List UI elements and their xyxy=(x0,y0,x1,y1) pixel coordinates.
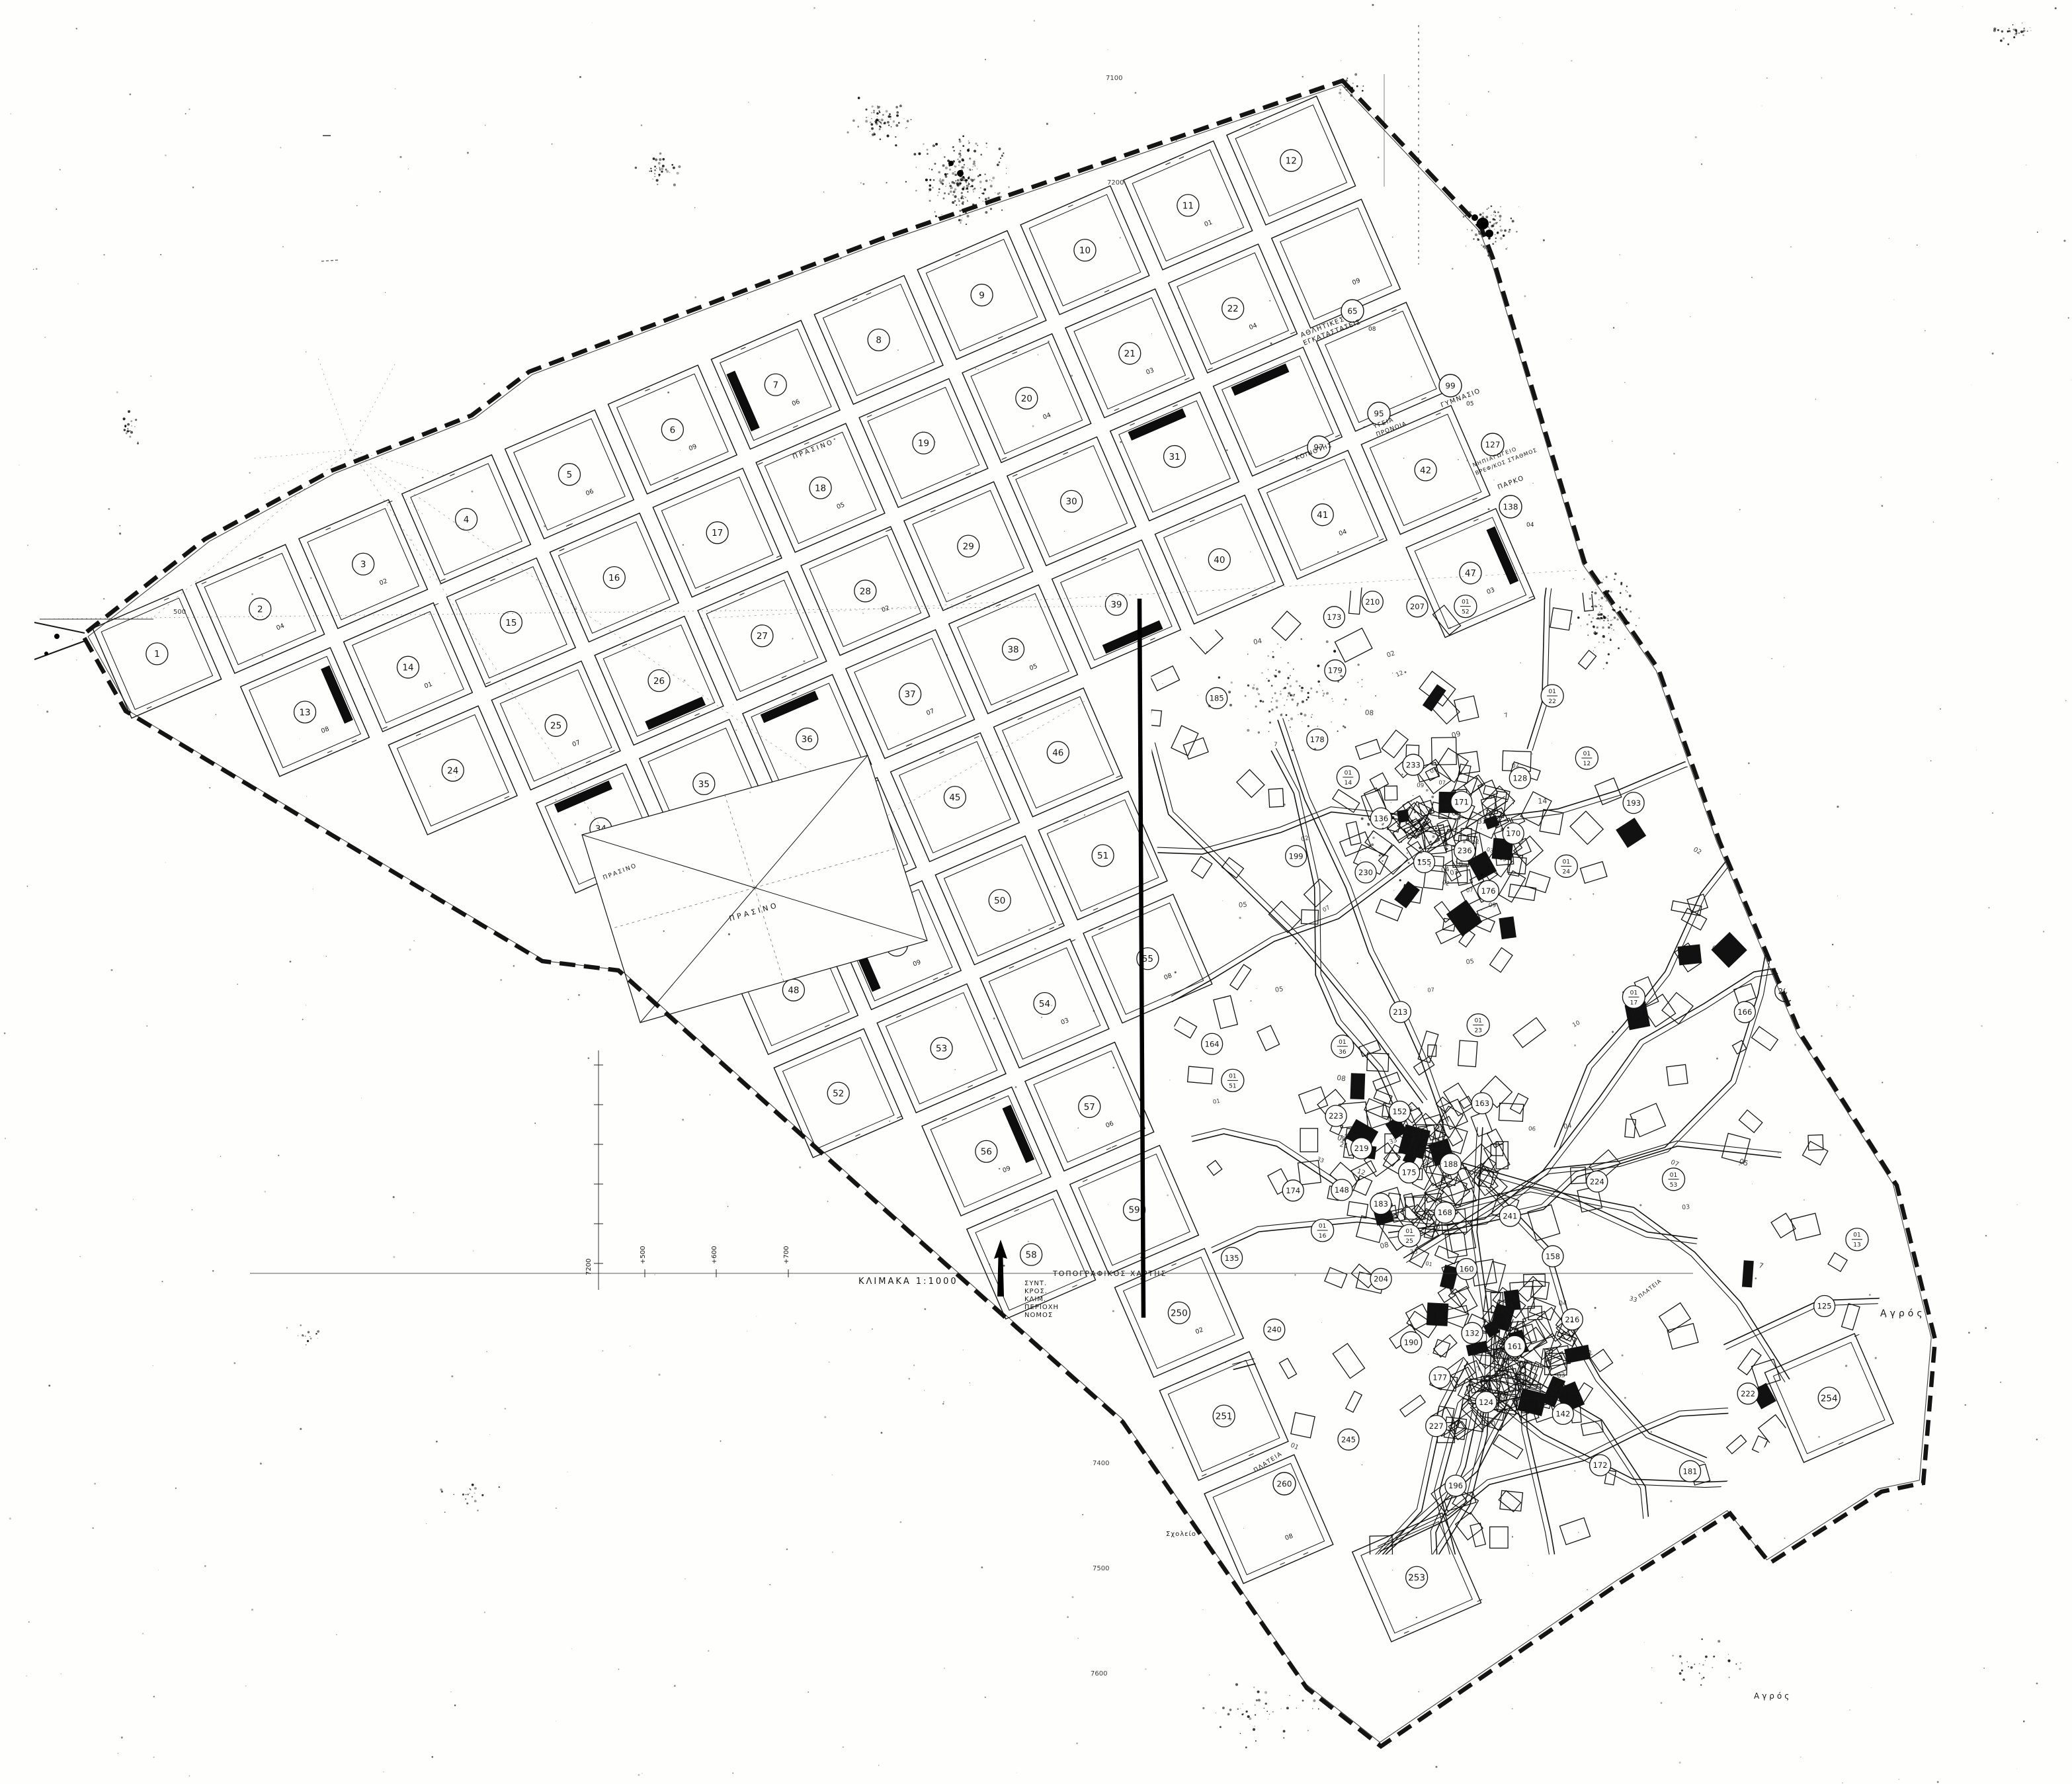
svg-text:01: 01 xyxy=(1319,1223,1326,1230)
block-number: 219 xyxy=(1354,1144,1369,1153)
block-number: 20 xyxy=(1021,394,1032,404)
block-number: 216 xyxy=(1565,1315,1579,1324)
svg-text:01: 01 xyxy=(1670,1172,1677,1179)
block-number: 183 xyxy=(1374,1199,1388,1209)
legend-line: ΚΛΙΜ. xyxy=(1024,1296,1046,1303)
svg-text:24: 24 xyxy=(1563,869,1571,875)
svg-text:13: 13 xyxy=(1853,1242,1860,1249)
block-number: 18 xyxy=(815,483,826,493)
block-number: 17 xyxy=(712,528,723,538)
map-annotation: Αγρός xyxy=(1880,1308,1926,1319)
grid-ref-label: 7500 xyxy=(1093,1565,1109,1572)
svg-text:07: 07 xyxy=(1427,986,1435,994)
block-number: 128 xyxy=(1513,773,1527,783)
block-number: 178 xyxy=(1310,735,1325,744)
block-number: 45 xyxy=(949,792,960,803)
block-number: 177 xyxy=(1432,1373,1447,1382)
block-number: 196 xyxy=(1448,1481,1463,1490)
block-number: 42 xyxy=(1420,465,1431,476)
block-number: 56 xyxy=(981,1147,992,1158)
block-number: 173 xyxy=(1327,613,1341,622)
block-number: 47 xyxy=(1465,568,1476,579)
block-number: 155 xyxy=(1417,857,1432,867)
block-number: 174 xyxy=(1286,1186,1300,1195)
svg-text:03: 03 xyxy=(1682,1203,1690,1211)
block-number: 166 xyxy=(1737,1007,1752,1017)
block-number: 29 xyxy=(963,542,974,552)
svg-text:01: 01 xyxy=(1425,1260,1433,1268)
grid-ref-label: 500 xyxy=(173,609,186,616)
block-number: 250 xyxy=(1171,1308,1188,1319)
block-number: 179 xyxy=(1328,666,1343,675)
block-number: 14 xyxy=(402,663,413,673)
block-number: 54 xyxy=(1039,999,1050,1009)
block-number: 136 xyxy=(1374,814,1388,823)
block-number: 185 xyxy=(1210,694,1224,703)
svg-text:07: 07 xyxy=(1466,887,1474,894)
block-number: 16 xyxy=(608,573,620,583)
svg-text:33: 33 xyxy=(1477,818,1487,826)
block-number: 95 xyxy=(1374,409,1384,418)
block-number: 30 xyxy=(1066,497,1077,507)
svg-text:01: 01 xyxy=(1405,1228,1413,1235)
grid-ref-label: 7200 xyxy=(1107,179,1124,187)
block-number: 65 xyxy=(1347,306,1357,316)
block-number: 1 xyxy=(154,649,160,659)
svg-text:36: 36 xyxy=(1339,1049,1347,1056)
block-number: 26 xyxy=(653,676,665,687)
block-number: 222 xyxy=(1741,1389,1755,1398)
svg-text:14: 14 xyxy=(1538,796,1547,805)
svg-text:16: 16 xyxy=(1319,1233,1327,1240)
svg-text:08: 08 xyxy=(1336,1074,1346,1083)
svg-text:22: 22 xyxy=(1548,699,1555,705)
svg-text:12: 12 xyxy=(1583,761,1591,767)
svg-text:03: 03 xyxy=(1557,1372,1566,1380)
block-number: 260 xyxy=(1277,1479,1292,1488)
map-annotation: ΤΟΠΟΓΡΑΦΙΚΟΣ ΧΑΡΤΗΣ xyxy=(1052,1269,1167,1278)
block-number: 57 xyxy=(1084,1102,1095,1113)
svg-text:01: 01 xyxy=(1462,599,1469,606)
grid-ref-label: 7100 xyxy=(1106,75,1122,82)
block-number: 132 xyxy=(1465,1328,1479,1338)
block-number: 241 xyxy=(1503,1211,1517,1220)
svg-text:02: 02 xyxy=(1423,1132,1430,1140)
svg-text:01: 01 xyxy=(1345,770,1352,777)
block-number: 170 xyxy=(1506,829,1520,838)
block-number: 138 xyxy=(1503,502,1518,511)
block-number: 125 xyxy=(1817,1302,1832,1311)
svg-text:05: 05 xyxy=(1239,902,1248,910)
block-number: 4 xyxy=(464,515,470,525)
block-number: 41 xyxy=(1317,510,1328,521)
svg-text:04: 04 xyxy=(1563,1123,1572,1131)
legend-line: ΣΥΝΤ. xyxy=(1024,1280,1047,1287)
block-number: 213 xyxy=(1393,1007,1407,1017)
block-number: 168 xyxy=(1438,1208,1452,1217)
block-number: 51 xyxy=(1097,851,1108,861)
block-number: 176 xyxy=(1481,886,1496,896)
block-number: 27 xyxy=(757,631,768,642)
block-number: 31 xyxy=(1169,452,1180,462)
svg-text:51: 51 xyxy=(1229,1083,1236,1089)
block-number: 236 xyxy=(1458,846,1472,855)
svg-text:04: 04 xyxy=(1441,866,1450,874)
svg-text:05: 05 xyxy=(1466,401,1473,407)
block-number: 46 xyxy=(1052,747,1063,758)
block-number: 158 xyxy=(1546,1252,1560,1261)
svg-text:02: 02 xyxy=(1516,1360,1524,1367)
svg-text:04: 04 xyxy=(1526,522,1534,529)
block-number: 15 xyxy=(505,618,517,628)
block-number: 24 xyxy=(447,765,458,776)
block-number: 253 xyxy=(1408,1573,1425,1584)
block-number: 127 xyxy=(1485,440,1501,449)
block-number: 224 xyxy=(1590,1177,1604,1186)
legend-line: ΚΡΟΣ. xyxy=(1024,1288,1048,1295)
block-number: 223 xyxy=(1329,1111,1343,1121)
legend-line: ΝΟΜΟΣ xyxy=(1024,1312,1053,1319)
block-number: 2 xyxy=(257,604,263,615)
block-number: 7 xyxy=(772,380,778,390)
block-number: 207 xyxy=(1410,602,1425,611)
block-number: 181 xyxy=(1683,1466,1698,1476)
block-number: 36 xyxy=(802,734,813,745)
map-annotation: Σχολείο xyxy=(1166,1530,1196,1538)
svg-text:01: 01 xyxy=(1229,1073,1236,1080)
block-number: 148 xyxy=(1335,1185,1349,1195)
block-number: 254 xyxy=(1821,1393,1838,1404)
svg-text:04: 04 xyxy=(1559,1300,1567,1307)
block-number: 142 xyxy=(1555,1410,1570,1419)
svg-text:09: 09 xyxy=(1417,783,1425,790)
block-number: 3 xyxy=(360,560,366,570)
block-number: 152 xyxy=(1392,1107,1407,1117)
block-number: 160 xyxy=(1460,1265,1474,1274)
block-number: 199 xyxy=(1289,851,1304,861)
block-number: 13 xyxy=(299,707,310,718)
scale-tick-label: +700 xyxy=(783,1246,790,1264)
block-number: 163 xyxy=(1475,1099,1489,1108)
block-number: 52 xyxy=(833,1088,844,1099)
block-number: 5 xyxy=(567,470,573,480)
svg-text:23: 23 xyxy=(1474,1028,1481,1035)
svg-text:09: 09 xyxy=(1489,902,1497,909)
block-number: 188 xyxy=(1443,1160,1458,1169)
block-number: 193 xyxy=(1626,798,1641,808)
block-number: 38 xyxy=(1007,644,1018,655)
block-number: 8 xyxy=(876,335,882,346)
block-number: 39 xyxy=(1110,600,1122,611)
block-number: 230 xyxy=(1358,868,1373,877)
block-number: 48 xyxy=(788,986,799,996)
block-number: 227 xyxy=(1429,1422,1444,1431)
cadastral-map-sheet: ΤΟΠΟΓΡΑΦΙΚΟΣ ΧΑΡΤΗΣ 12043024506609706891… xyxy=(0,0,2072,1784)
block-number: 28 xyxy=(860,586,871,597)
block-number: 9 xyxy=(979,290,985,301)
block-number: 135 xyxy=(1225,1253,1239,1263)
block-number: 12 xyxy=(1286,156,1297,167)
svg-text:01: 01 xyxy=(1563,859,1570,865)
svg-text:03: 03 xyxy=(1528,1402,1536,1410)
block-number: 240 xyxy=(1267,1325,1282,1334)
paper-background xyxy=(0,0,2072,1784)
cadastral-map-svg: 1204302450660970689101101121308140115161… xyxy=(0,0,2072,1784)
block-number: 124 xyxy=(1479,1398,1493,1407)
block-number: 233 xyxy=(1406,760,1421,769)
legend-line: ΠΕΡΙΟΧΗ xyxy=(1024,1304,1059,1311)
block-number: 245 xyxy=(1341,1435,1356,1444)
svg-text:08: 08 xyxy=(1364,709,1374,718)
svg-text:01: 01 xyxy=(1474,1018,1481,1025)
grid-ref-label: 7600 xyxy=(1091,1670,1107,1678)
svg-text:33: 33 xyxy=(1409,1248,1418,1256)
svg-text:06: 06 xyxy=(1528,1126,1536,1133)
svg-text:25: 25 xyxy=(1405,1238,1413,1245)
block-number: 204 xyxy=(1374,1275,1388,1284)
block-number: 161 xyxy=(1507,1341,1522,1351)
block-number: 58 xyxy=(1026,1250,1037,1260)
svg-text:10: 10 xyxy=(1487,1420,1495,1427)
svg-text:14: 14 xyxy=(1434,1181,1442,1189)
block-number: 99 xyxy=(1445,381,1455,390)
grid-ref-label: 7400 xyxy=(1093,1460,1109,1467)
block-number: 19 xyxy=(918,439,929,449)
svg-text:05: 05 xyxy=(1274,986,1284,994)
block-number: 40 xyxy=(1214,555,1225,566)
svg-text:10: 10 xyxy=(1454,861,1463,869)
block-number: 172 xyxy=(1593,1461,1608,1470)
grid-axis-label: 7200 xyxy=(585,1259,593,1275)
svg-text:01: 01 xyxy=(1583,751,1591,757)
block-number: 190 xyxy=(1404,1338,1419,1347)
block-number: 10 xyxy=(1079,245,1091,256)
svg-text:7: 7 xyxy=(1274,742,1278,748)
block-number: 22 xyxy=(1227,304,1239,314)
svg-text:01: 01 xyxy=(1548,689,1555,695)
block-number: 37 xyxy=(905,689,916,700)
svg-text:01: 01 xyxy=(1339,1039,1346,1046)
svg-text:17: 17 xyxy=(1630,999,1637,1006)
block-number: 55 xyxy=(1142,954,1153,964)
svg-text:52: 52 xyxy=(1462,609,1469,616)
map-annotation: ΚΛΙΜΑΚΑ 1:1000 xyxy=(858,1277,958,1287)
svg-text:14: 14 xyxy=(1345,780,1352,786)
svg-text:08: 08 xyxy=(1368,326,1376,333)
block-number: 175 xyxy=(1402,1168,1417,1177)
svg-text:01: 01 xyxy=(1853,1232,1860,1239)
scale-tick-label: +500 xyxy=(640,1246,647,1264)
block-number: 164 xyxy=(1205,1039,1220,1048)
svg-text:01: 01 xyxy=(1212,1098,1221,1106)
svg-text:05: 05 xyxy=(1466,958,1474,966)
scale-tick-label: +600 xyxy=(711,1246,718,1264)
block-number: 210 xyxy=(1365,597,1380,607)
block-number: 53 xyxy=(936,1044,947,1054)
svg-text:07: 07 xyxy=(1438,779,1446,786)
block-number: 50 xyxy=(994,896,1005,906)
block-number: 171 xyxy=(1454,797,1469,806)
block-number: 11 xyxy=(1182,200,1194,211)
block-number: 6 xyxy=(670,425,676,435)
svg-text:53: 53 xyxy=(1670,1182,1677,1189)
svg-text:01: 01 xyxy=(1630,990,1637,996)
map-annotation: Αγρός xyxy=(1754,1691,1792,1701)
block-number: 35 xyxy=(698,779,710,790)
block-number: 25 xyxy=(550,721,561,732)
block-number: 21 xyxy=(1124,349,1136,359)
block-number: 59 xyxy=(1128,1205,1140,1216)
